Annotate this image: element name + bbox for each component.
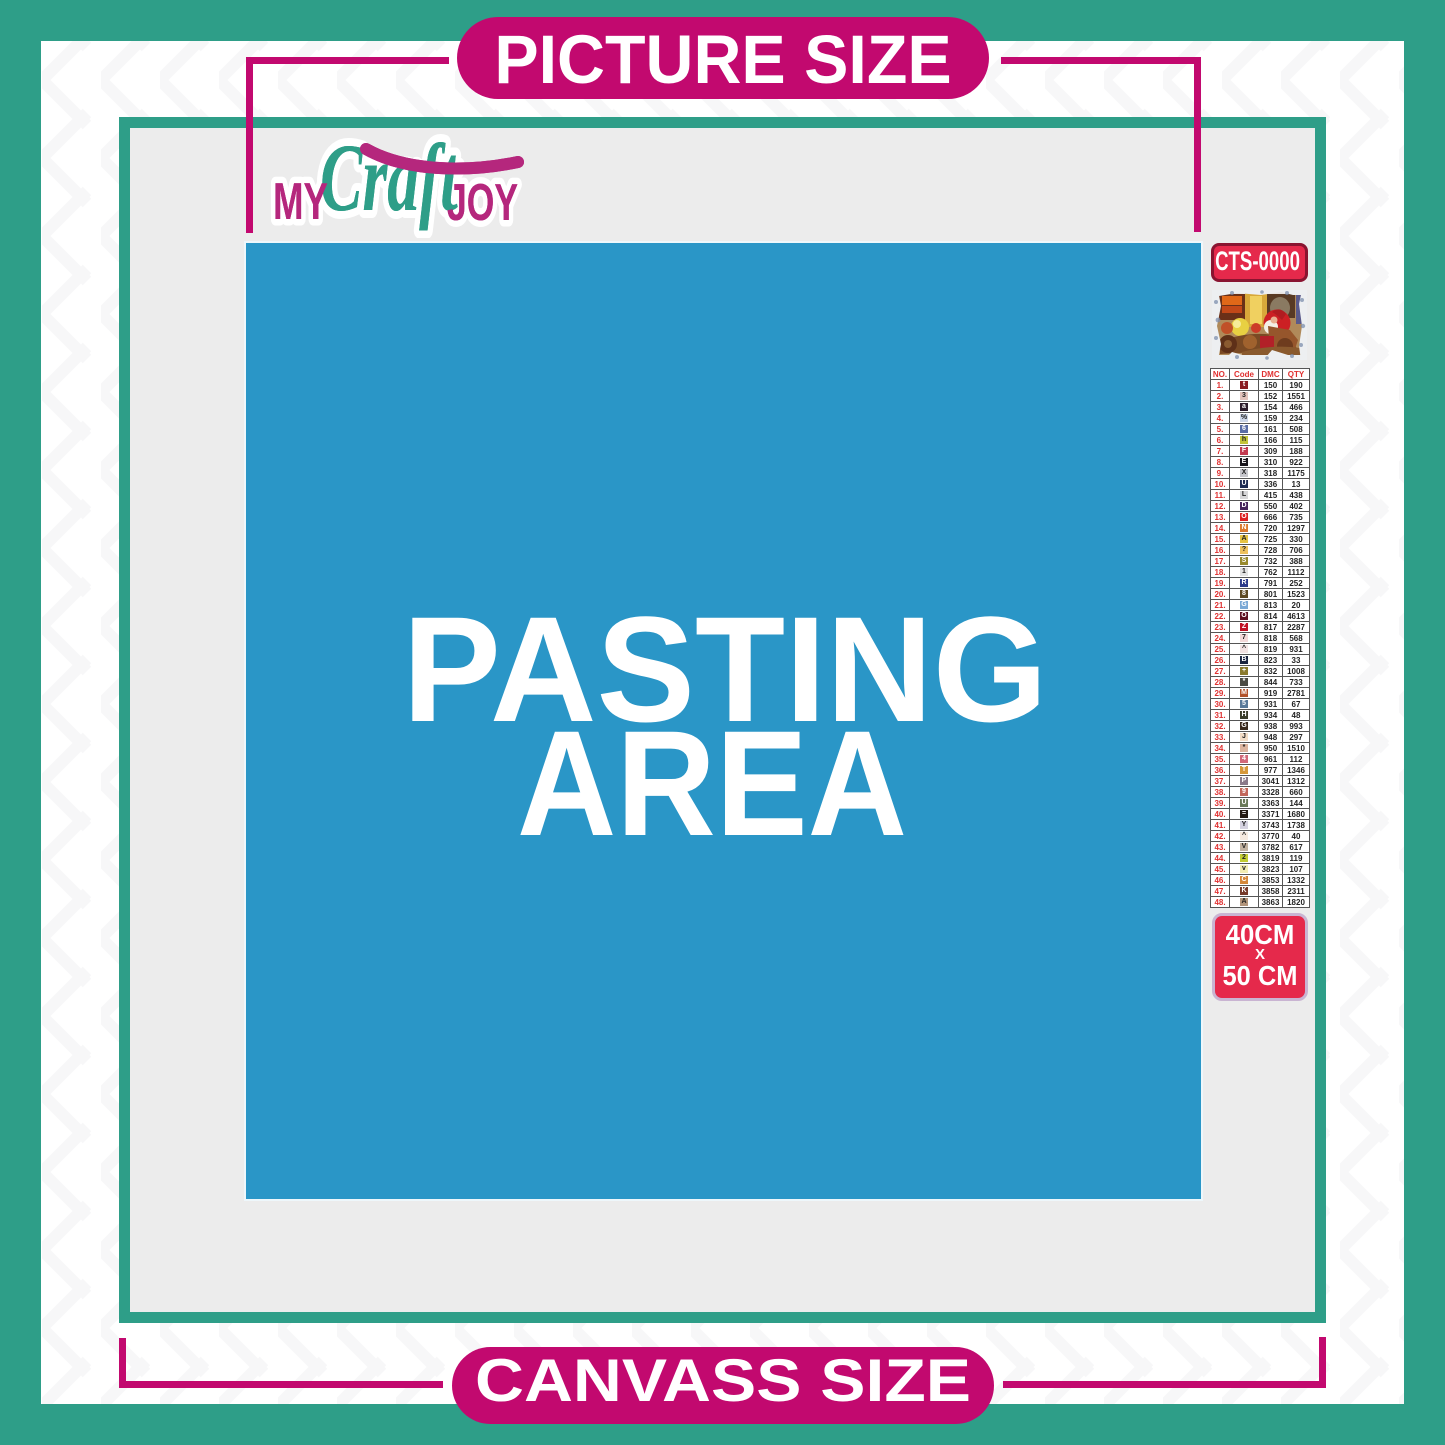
svg-text:MY: MY xyxy=(273,173,328,231)
svg-text:Craft: Craft xyxy=(320,128,460,231)
svg-text:JOY: JOY xyxy=(447,174,518,232)
